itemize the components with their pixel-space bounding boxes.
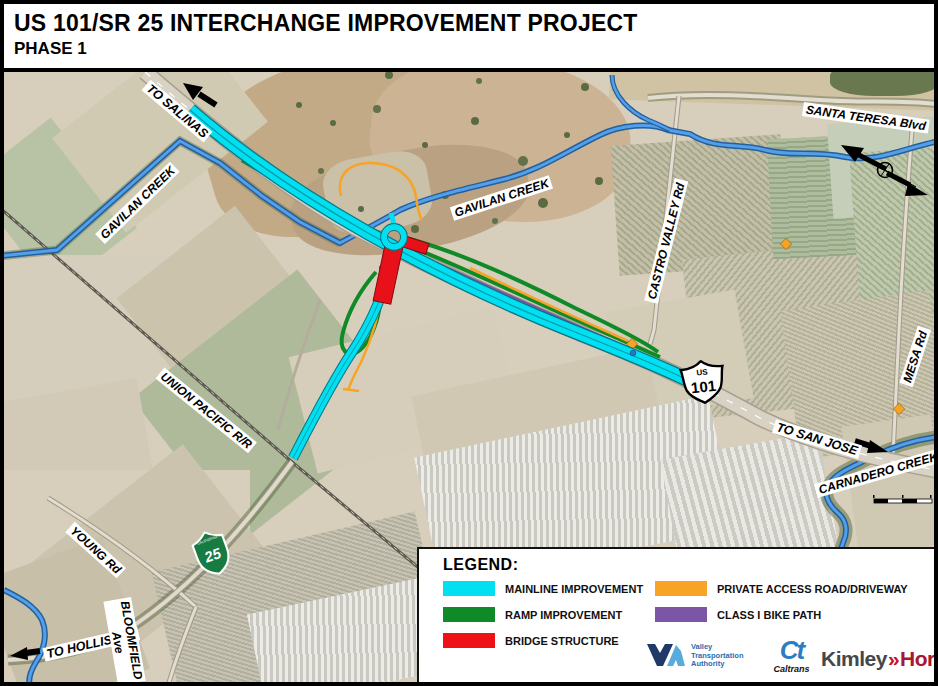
legend-swatch-private-access	[655, 581, 707, 596]
svg-text:US: US	[696, 367, 709, 377]
us-101-shield: US 101	[678, 358, 728, 407]
svg-text:101: 101	[690, 377, 717, 397]
legend-swatch-bridge	[443, 633, 495, 648]
road-trees	[8, 462, 292, 660]
caltrans-mark-icon: Ct	[764, 637, 819, 663]
vta-wordmark: Valley Transportation Authority	[691, 643, 744, 669]
creek-trees	[0, 141, 340, 256]
legend-swatch-ramp	[443, 607, 495, 622]
driveway-markers	[626, 238, 904, 414]
scale-bar	[873, 495, 932, 503]
utility-marker	[630, 350, 636, 356]
southwest-creek-line	[4, 590, 45, 686]
kimley-horn-part2: Horn	[900, 647, 938, 670]
kimley-horn-part1: Kimley	[821, 647, 887, 670]
kimley-horn-chevrons-icon: »	[887, 647, 900, 670]
us101-roadway	[145, 72, 936, 470]
project-exhibit-page: TO SALINAS GAVILAN CREEK GAVILAN CREEK S…	[0, 0, 938, 686]
aerial-map: TO SALINAS GAVILAN CREEK GAVILAN CREEK S…	[0, 0, 938, 686]
vta-mark-icon	[647, 641, 687, 671]
legend-label-mainline: MAINLINE IMPROVEMENT	[505, 583, 643, 595]
caltrans-logo: Ct Caltrans	[764, 637, 819, 681]
legend-label-bike-path: CLASS I BIKE PATH	[717, 609, 821, 621]
legend-swatch-bike-path	[655, 607, 707, 622]
legend-label-ramp: RAMP IMPROVEMENT	[505, 609, 622, 621]
kimley-horn-logo: Kimley»Horn	[821, 647, 938, 671]
project-title: US 101/SR 25 INTERCHANGE IMPROVEMENT PRO…	[14, 10, 934, 37]
caltrans-wordmark: Caltrans	[764, 664, 819, 674]
vta-logo: Valley Transportation Authority	[647, 641, 762, 681]
legend-heading: LEGEND:	[443, 556, 519, 574]
title-block: US 101/SR 25 INTERCHANGE IMPROVEMENT PRO…	[4, 4, 934, 72]
legend-label-private-access: PRIVATE ACCESS ROAD/DRIVEWAY	[717, 583, 908, 595]
legend-panel: LEGEND: MAINLINE IMPROVEMENT RAMP IMPROV…	[417, 547, 935, 683]
legend-label-bridge: BRIDGE STRUCTURE	[505, 635, 619, 647]
project-phase: PHASE 1	[14, 39, 934, 59]
legend-swatch-mainline	[443, 581, 495, 596]
